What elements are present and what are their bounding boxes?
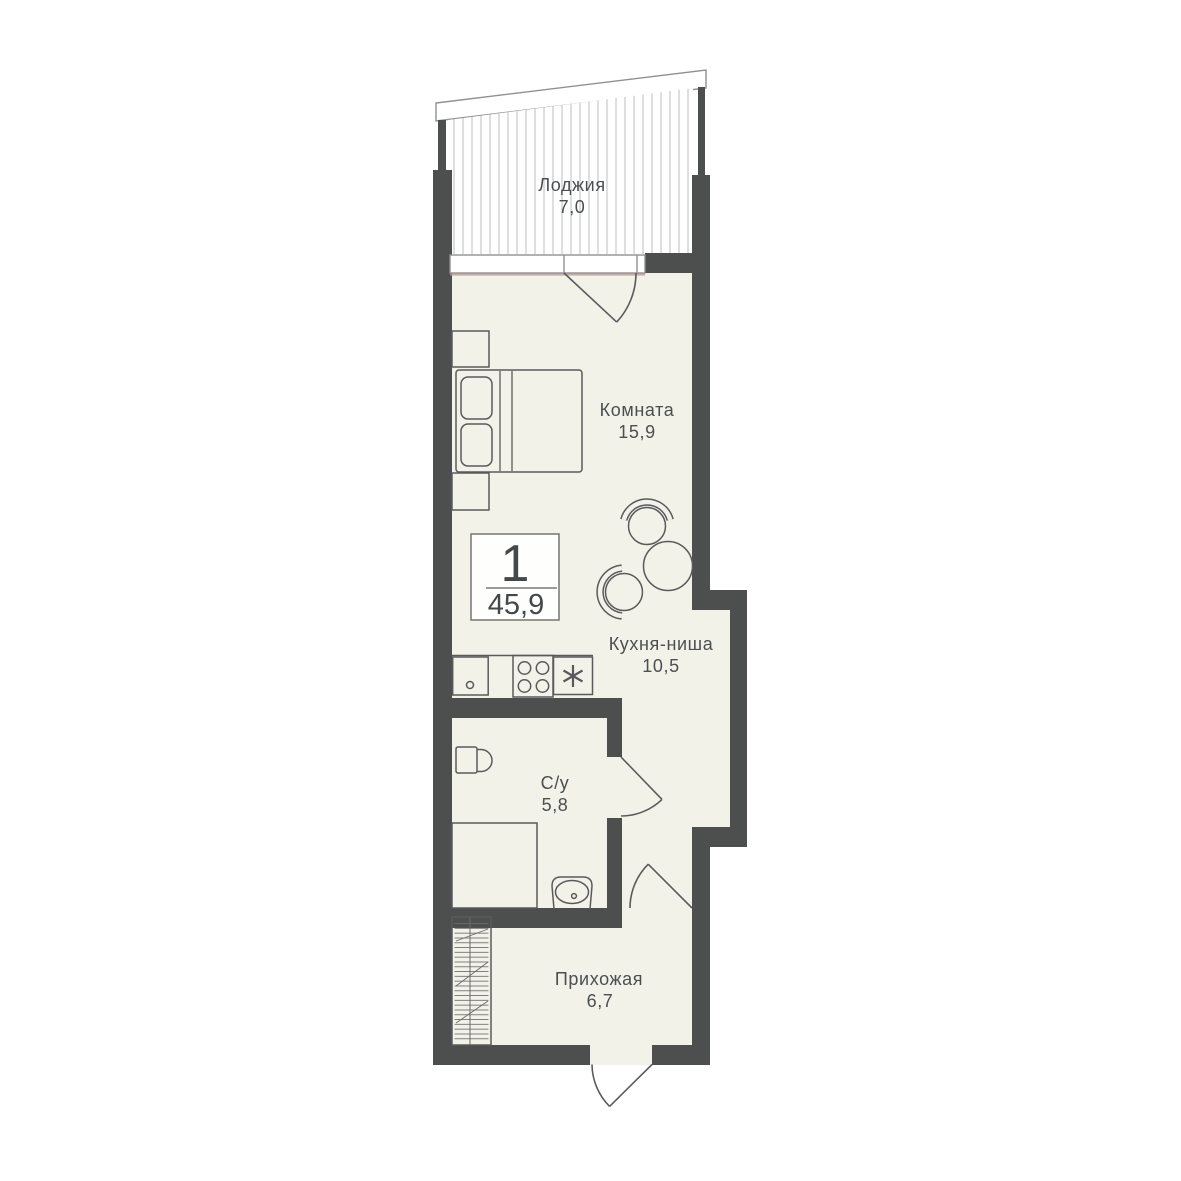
wall-top-left-of-window <box>433 253 452 273</box>
bathroom-area: 5,8 <box>542 795 569 815</box>
floor-plan: Лоджия 7,0 Комната 15,9 Кухня-ниша 10,5 … <box>0 0 1181 1181</box>
wardrobe <box>452 917 491 1045</box>
loggia <box>436 70 706 254</box>
wall-top-right-of-window <box>645 253 710 273</box>
wall-bathroom-top <box>452 698 622 718</box>
kitchen-name: Кухня-ниша <box>609 634 714 654</box>
apartment-badge: 1 45,9 <box>471 534 559 621</box>
chair-seat-top <box>629 508 666 545</box>
wall-left <box>433 170 452 1065</box>
loggia-area: 7,0 <box>559 197 586 217</box>
floor-plan-page: Лоджия 7,0 Комната 15,9 Кухня-ниша 10,5 … <box>0 0 1181 1181</box>
chair-seat-left <box>606 574 643 611</box>
wall-right-upper <box>692 273 710 598</box>
entry-door-swing <box>592 1065 652 1107</box>
wall-bulge-bottom-step <box>692 827 747 847</box>
wall-right-lower <box>692 847 710 1065</box>
nightstand-top <box>452 331 489 367</box>
room-area: 15,9 <box>618 422 655 442</box>
wall-bathroom-right-upper <box>607 718 622 757</box>
wall-bulge-top-step <box>692 590 747 610</box>
badge-rooms-count: 1 <box>501 535 530 593</box>
window-sill-line <box>450 274 645 276</box>
wall-left-pier-thin <box>438 120 446 173</box>
wall-bathroom-right-lower <box>607 818 622 908</box>
wall-bottom-right <box>652 1045 710 1065</box>
loggia-name: Лоджия <box>538 175 605 195</box>
nightstand-bottom <box>452 473 489 510</box>
badge-total-area: 45,9 <box>488 589 544 621</box>
kitchen-area: 10,5 <box>642 656 679 676</box>
round-table <box>644 542 693 591</box>
hallway-area: 6,7 <box>587 991 614 1011</box>
wall-bottom-left <box>433 1045 590 1065</box>
wall-right-pier-thin <box>698 87 705 179</box>
hallway-name: Прихожая <box>555 969 643 989</box>
bathroom-name: С/у <box>541 773 570 793</box>
wall-bulge-right <box>730 610 747 827</box>
bed <box>456 370 582 472</box>
room-name: Комната <box>600 400 675 420</box>
